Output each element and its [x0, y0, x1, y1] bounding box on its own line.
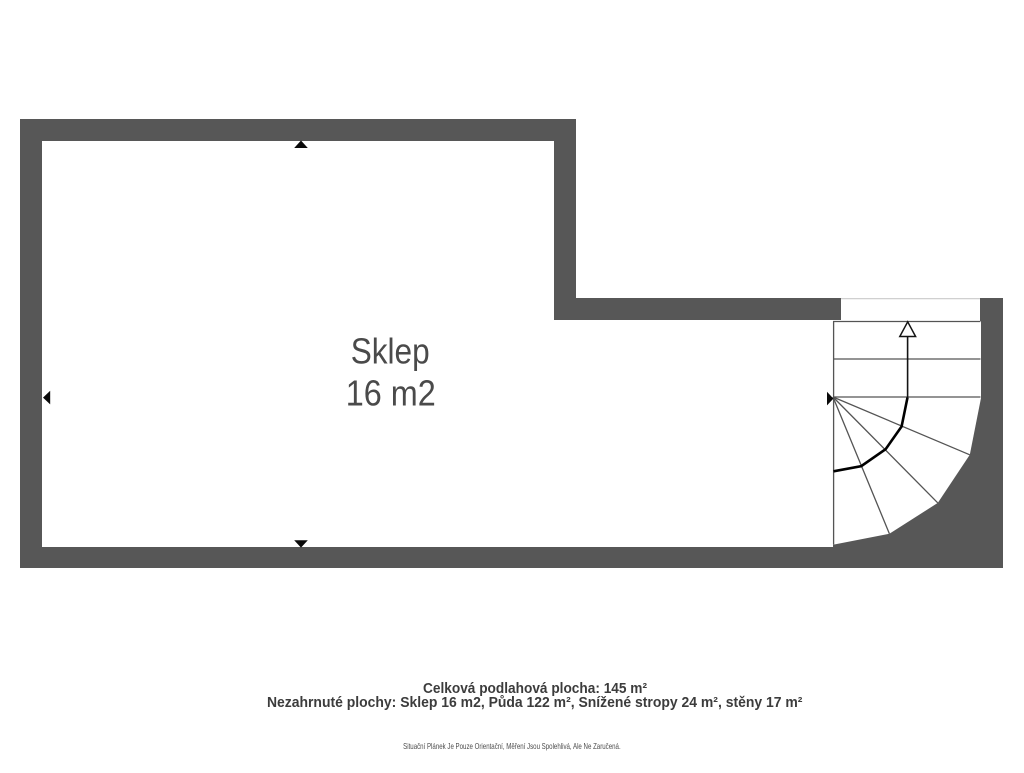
- svg-text:Sklep: Sklep: [351, 331, 430, 372]
- svg-text:Nezahrnuté plochy: Sklep 16 m2: Nezahrnuté plochy: Sklep 16 m2, Půda 122…: [267, 695, 803, 711]
- svg-text:Situační Plánek Je Pouze Orien: Situační Plánek Je Pouze Orientační, Měř…: [403, 741, 621, 751]
- svg-text:16 m2: 16 m2: [346, 372, 436, 413]
